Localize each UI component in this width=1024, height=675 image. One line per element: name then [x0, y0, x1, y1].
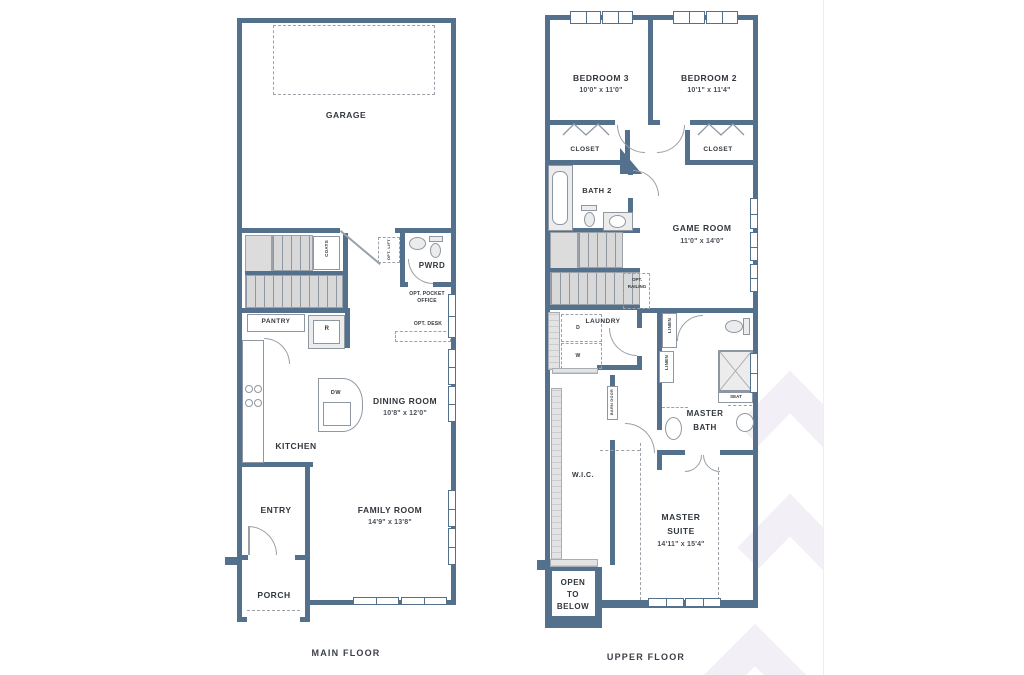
garage-top-wall	[237, 18, 456, 23]
main-floor-title: MAIN FLOOR	[312, 648, 381, 658]
bedroom-divider-wall	[648, 15, 653, 125]
game-room-dims: 11'0" x 14'0"	[680, 238, 723, 245]
upper-right-wall	[753, 15, 758, 608]
cooktop-burner-3	[245, 399, 253, 407]
cooktop-burner-1	[245, 385, 253, 393]
pwrd-sink	[409, 237, 426, 250]
bedroom2-window-right	[706, 11, 738, 24]
bedroom2-window-left	[673, 11, 705, 24]
laundry-counter	[548, 312, 560, 370]
masterbath-toilet-bowl	[725, 320, 743, 333]
dining-window-lower	[448, 386, 456, 422]
game-window-1	[750, 198, 758, 229]
pwrd-left-wall	[400, 233, 405, 282]
washer-dashed-box	[561, 343, 602, 369]
coats-label: COATS	[324, 240, 329, 257]
porch-label: PORCH	[257, 590, 290, 600]
linen-cabinet-upper: LINEN	[662, 313, 677, 348]
fridge-label: R	[325, 326, 330, 332]
suite-rear-window-right	[685, 598, 721, 607]
entry-family-wall	[305, 467, 310, 565]
bath2-sink	[609, 215, 626, 228]
stairs-lower-run	[245, 275, 343, 308]
linen-lower-label: LINEN	[664, 355, 669, 370]
game-window-3	[750, 264, 758, 292]
dining-room-label: DINING ROOM	[373, 396, 437, 406]
pwrd-bottom-wall-a	[400, 282, 408, 287]
porch-edge-dashed-line	[247, 610, 300, 611]
bedroom3-dims: 10'0" x 11'0"	[579, 87, 622, 94]
main-left-wall	[237, 18, 242, 622]
open-to-below-line3: BELOW	[557, 602, 589, 611]
master-suite-label-line2: SUITE	[667, 526, 695, 536]
family-side-window-upper	[448, 490, 456, 527]
pwrd-label: PWRD	[419, 261, 445, 270]
openbelow-bottom-wall	[545, 616, 602, 628]
entry-bottom-wall-a	[237, 555, 248, 560]
pwrd-toilet-bowl	[430, 243, 441, 258]
garage-label: GARAGE	[326, 110, 366, 120]
suite-dashed-line-left	[640, 443, 641, 600]
stair-hall-wall	[343, 233, 348, 308]
porch-bottom-return-right	[300, 617, 310, 622]
closet-left-label: CLOSET	[570, 146, 599, 153]
garage-storage-dashed-area	[273, 25, 435, 95]
bedroom3-label: BEDROOM 3	[573, 73, 629, 83]
family-room-dims: 14'9" x 13'8"	[368, 519, 412, 526]
closet-right-label: CLOSET	[703, 146, 732, 153]
game-window-2	[750, 232, 758, 261]
bedroom3-window-left	[570, 11, 601, 24]
upper-stairs-top-run	[578, 232, 623, 268]
master-suite-dims: 14'11" x 15'4"	[657, 541, 704, 548]
open-to-below-line2: TO	[567, 590, 579, 599]
dishwasher-label: DW	[331, 390, 341, 396]
stairs-upper-run	[272, 235, 313, 271]
closet-left-bifold-doors	[562, 123, 610, 136]
vanity-dashed-left	[662, 407, 688, 408]
wic-right-wall-b	[610, 440, 615, 565]
dining-room-dims: 10'8" x 12'0"	[383, 410, 427, 417]
bath2-label: BATH 2	[582, 186, 612, 195]
open-to-below-line1: OPEN	[561, 578, 586, 587]
pwrd-toilet-tank	[429, 236, 443, 242]
porch-bottom-return-left	[237, 617, 247, 622]
master-shower-x	[720, 352, 751, 390]
opt-lift-label: OPT. LIFT	[386, 239, 391, 260]
opt-railing-label-line1: OPT.	[632, 277, 642, 282]
bedroom3-window-right	[602, 11, 633, 24]
masterbath-left-wall-b	[657, 455, 662, 470]
garage-bottom-wall-left	[237, 228, 340, 233]
openbelow-left-stub	[537, 560, 545, 570]
dryer-label: D	[576, 325, 580, 331]
entry-label: ENTRY	[261, 505, 292, 515]
masterbath-sink-right	[736, 413, 754, 432]
opt-railing-label-line2: RAILING	[628, 284, 647, 289]
masterbath-sink-left	[665, 417, 682, 440]
laundry-door-arc	[609, 328, 637, 356]
vanity-dashed-right	[728, 405, 752, 406]
wic-top-shelf	[552, 368, 598, 374]
island-sink-cabinet	[323, 402, 351, 426]
masterbath-door-arc	[677, 315, 703, 341]
master-bath-label-line1: MASTER	[687, 409, 724, 418]
wic-label: W.I.C.	[572, 472, 594, 479]
bath2-tub	[552, 171, 568, 225]
masterbath-toilet-tank	[743, 318, 750, 335]
porch-right-wall	[305, 560, 310, 622]
linen-cabinet-lower: LINEN	[659, 351, 674, 383]
masterbath-bottom-wall-left	[657, 450, 685, 455]
master-bath-label-line2: BATH	[693, 423, 717, 432]
family-rear-window-left	[353, 597, 399, 605]
master-suite-label-line1: MASTER	[662, 512, 701, 522]
closet-right-bottom-wall	[685, 160, 753, 165]
closet-right-side-wall	[685, 130, 690, 165]
barn-door-panel: BARN DOOR	[607, 386, 618, 420]
family-rear-window-right	[401, 597, 447, 605]
opt-lift-dashed-box: OPT. LIFT	[378, 237, 400, 263]
cooktop-burner-2	[254, 385, 262, 393]
porch-left-stub-wall	[225, 557, 237, 565]
upper-floor-plan: BEDROOM 3 10'0" x 11'0" BEDROOM 2 10'1" …	[545, 15, 758, 660]
bedroom2-label: BEDROOM 2	[681, 73, 737, 83]
openbelow-top-wall	[545, 567, 602, 571]
bedroom2-door-arc	[657, 125, 685, 153]
barn-door-label: BARN DOOR	[610, 389, 614, 415]
laundry-label: LAUNDRY	[585, 318, 620, 325]
photo-edge-line	[823, 0, 824, 675]
suite-rear-window-left	[648, 598, 684, 607]
game-room-label: GAME ROOM	[673, 223, 732, 233]
opt-desk-dashed-outline	[395, 331, 451, 342]
dining-window-upper	[448, 349, 456, 385]
kitchen-label: KITCHEN	[275, 441, 316, 451]
cooktop-burner-4	[254, 399, 262, 407]
floorplan-canvas: GARAGE COATS OPT. LIFT PWRD OPT. POCKET …	[0, 0, 1024, 675]
front-door-arc	[248, 526, 277, 555]
wic-bottom-shelf	[550, 559, 598, 567]
bath2-toilet-bowl	[584, 212, 595, 227]
closet-right-bifold-doors	[697, 123, 745, 136]
main-floor-plan: GARAGE COATS OPT. LIFT PWRD OPT. POCKET …	[237, 18, 456, 658]
front-door-leaf	[248, 526, 250, 555]
bedroom2-dims: 10'1" x 11'4"	[687, 87, 730, 94]
office-window	[448, 294, 456, 338]
family-side-window-lower	[448, 528, 456, 565]
suite-dashed-line-top	[600, 450, 640, 451]
opt-pocket-office-label-line2: OFFICE	[417, 298, 437, 304]
masterbath-window	[750, 353, 758, 393]
pantry-door-arc	[264, 338, 290, 364]
washer-label: W	[576, 353, 581, 359]
opt-pocket-office-label-line1: OPT. POCKET	[409, 291, 445, 297]
stair-bottom-wall	[237, 308, 350, 313]
linen-upper-label: LINEN	[667, 318, 672, 333]
upper-floor-title: UPPER FLOOR	[607, 652, 685, 662]
fridge	[313, 320, 340, 344]
pantry-label: PANTRY	[262, 318, 291, 325]
coats-closet: COATS	[313, 236, 340, 270]
suite-dashed-line-right	[718, 467, 719, 600]
bath2-door-arc	[633, 170, 659, 196]
opt-desk-label: OPT. DESK	[414, 321, 442, 327]
fridge-right-wall	[345, 313, 350, 348]
family-room-label: FAMILY ROOM	[358, 505, 423, 515]
bath2-toilet-tank	[581, 205, 597, 211]
wic-left-shelf	[551, 388, 562, 560]
seat-label: SEAT	[730, 394, 742, 399]
laundry-bottom-wall	[597, 365, 642, 370]
masterbath-bottom-wall-right	[720, 450, 753, 455]
suite-double-door-left-arc	[685, 455, 702, 472]
pwrd-bottom-wall-b	[433, 282, 451, 287]
